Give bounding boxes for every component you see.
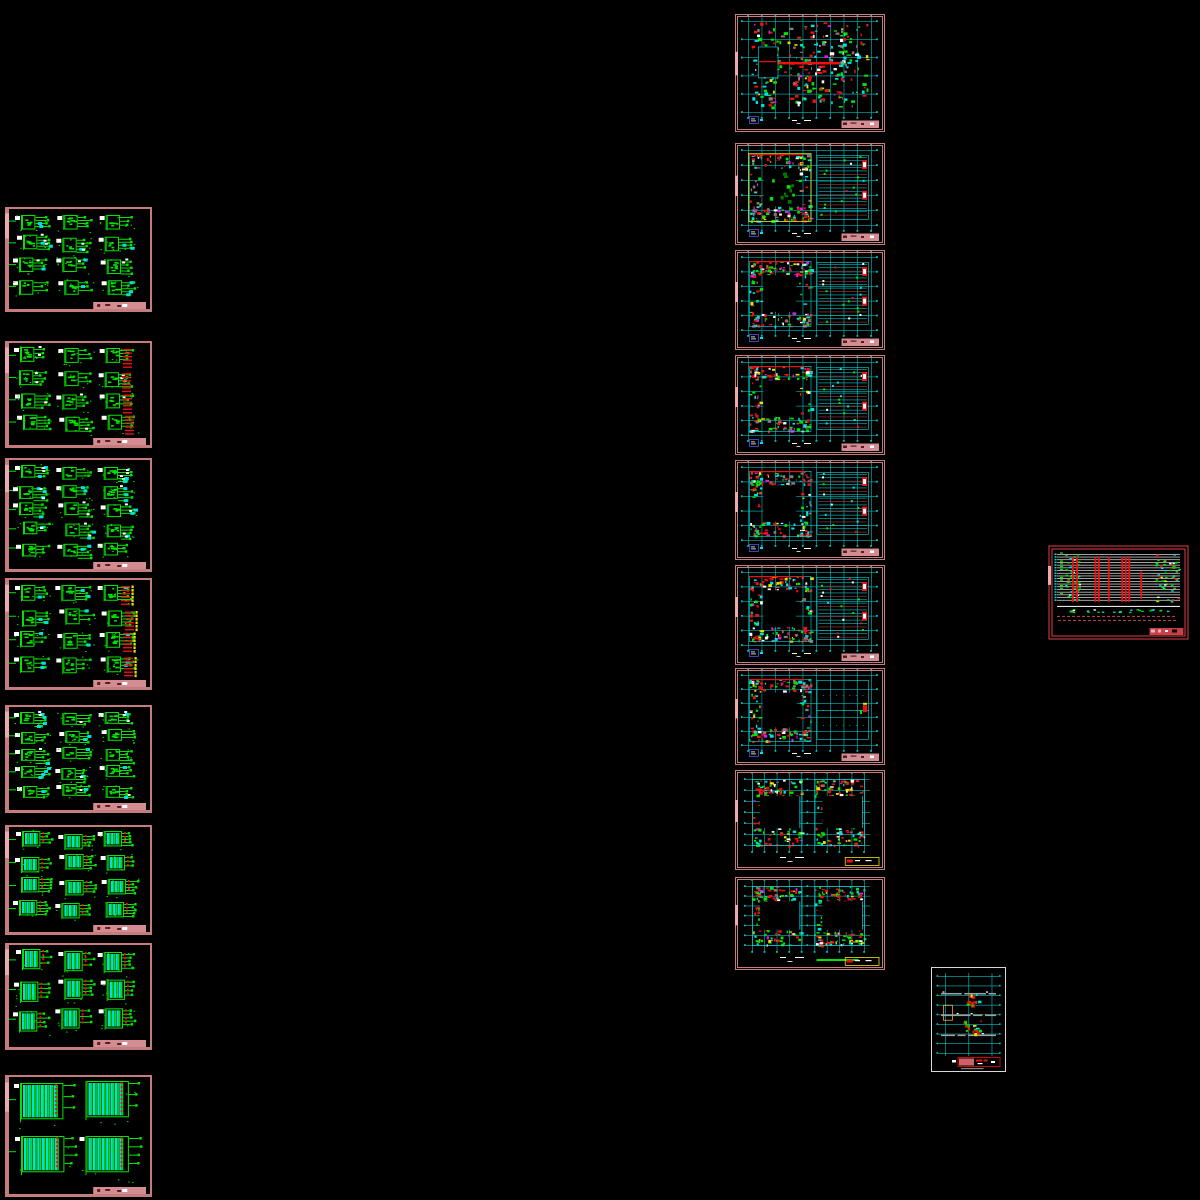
sheet-floor-plan-05[interactable] [735, 460, 885, 560]
floor-plan-03-drawing [735, 250, 885, 350]
electrical-schematic-07-drawing [5, 943, 152, 1050]
floor-plan-02-drawing [735, 143, 885, 245]
floor-plan-05-drawing [735, 460, 885, 560]
sheet-floor-plan-04[interactable] [735, 355, 885, 455]
floor-plan-08-drawing [735, 770, 885, 870]
system-riser-diagram-drawing [1048, 545, 1189, 640]
sheet-floor-plan-06[interactable] [735, 565, 885, 665]
sheet-floor-plan-02[interactable] [735, 143, 885, 245]
electrical-schematic-01-drawing [5, 207, 152, 312]
sheet-electrical-schematic-06[interactable] [5, 825, 152, 935]
sheet-floor-plan-07[interactable] [735, 668, 885, 765]
sheet-electrical-schematic-02[interactable] [5, 341, 152, 448]
electrical-schematic-02-drawing [5, 341, 152, 448]
sheet-electrical-schematic-01[interactable] [5, 207, 152, 312]
sheet-electrical-schematic-04[interactable] [5, 578, 152, 690]
floor-plan-01-drawing [735, 14, 885, 132]
sheet-electrical-schematic-08[interactable] [5, 1075, 152, 1197]
sheet-system-riser-diagram[interactable] [1048, 545, 1189, 640]
cad-model-space [0, 0, 1200, 1200]
sheet-floor-plan-08[interactable] [735, 770, 885, 870]
sheet-electrical-schematic-05[interactable] [5, 705, 152, 813]
sheet-floor-plan-01[interactable] [735, 14, 885, 132]
sheet-electrical-schematic-07[interactable] [5, 943, 152, 1050]
floor-plan-04-drawing [735, 355, 885, 455]
detail-floor-plan-drawing [931, 967, 1006, 1072]
sheet-floor-plan-03[interactable] [735, 250, 885, 350]
electrical-schematic-03-drawing [5, 458, 152, 572]
electrical-schematic-08-drawing [5, 1075, 152, 1197]
electrical-schematic-04-drawing [5, 578, 152, 690]
floor-plan-09-drawing [735, 877, 885, 970]
floor-plan-06-drawing [735, 565, 885, 665]
sheet-floor-plan-09[interactable] [735, 877, 885, 970]
sheet-electrical-schematic-03[interactable] [5, 458, 152, 572]
sheet-detail-floor-plan[interactable] [931, 967, 1006, 1072]
electrical-schematic-05-drawing [5, 705, 152, 813]
floor-plan-07-drawing [735, 668, 885, 765]
electrical-schematic-06-drawing [5, 825, 152, 935]
